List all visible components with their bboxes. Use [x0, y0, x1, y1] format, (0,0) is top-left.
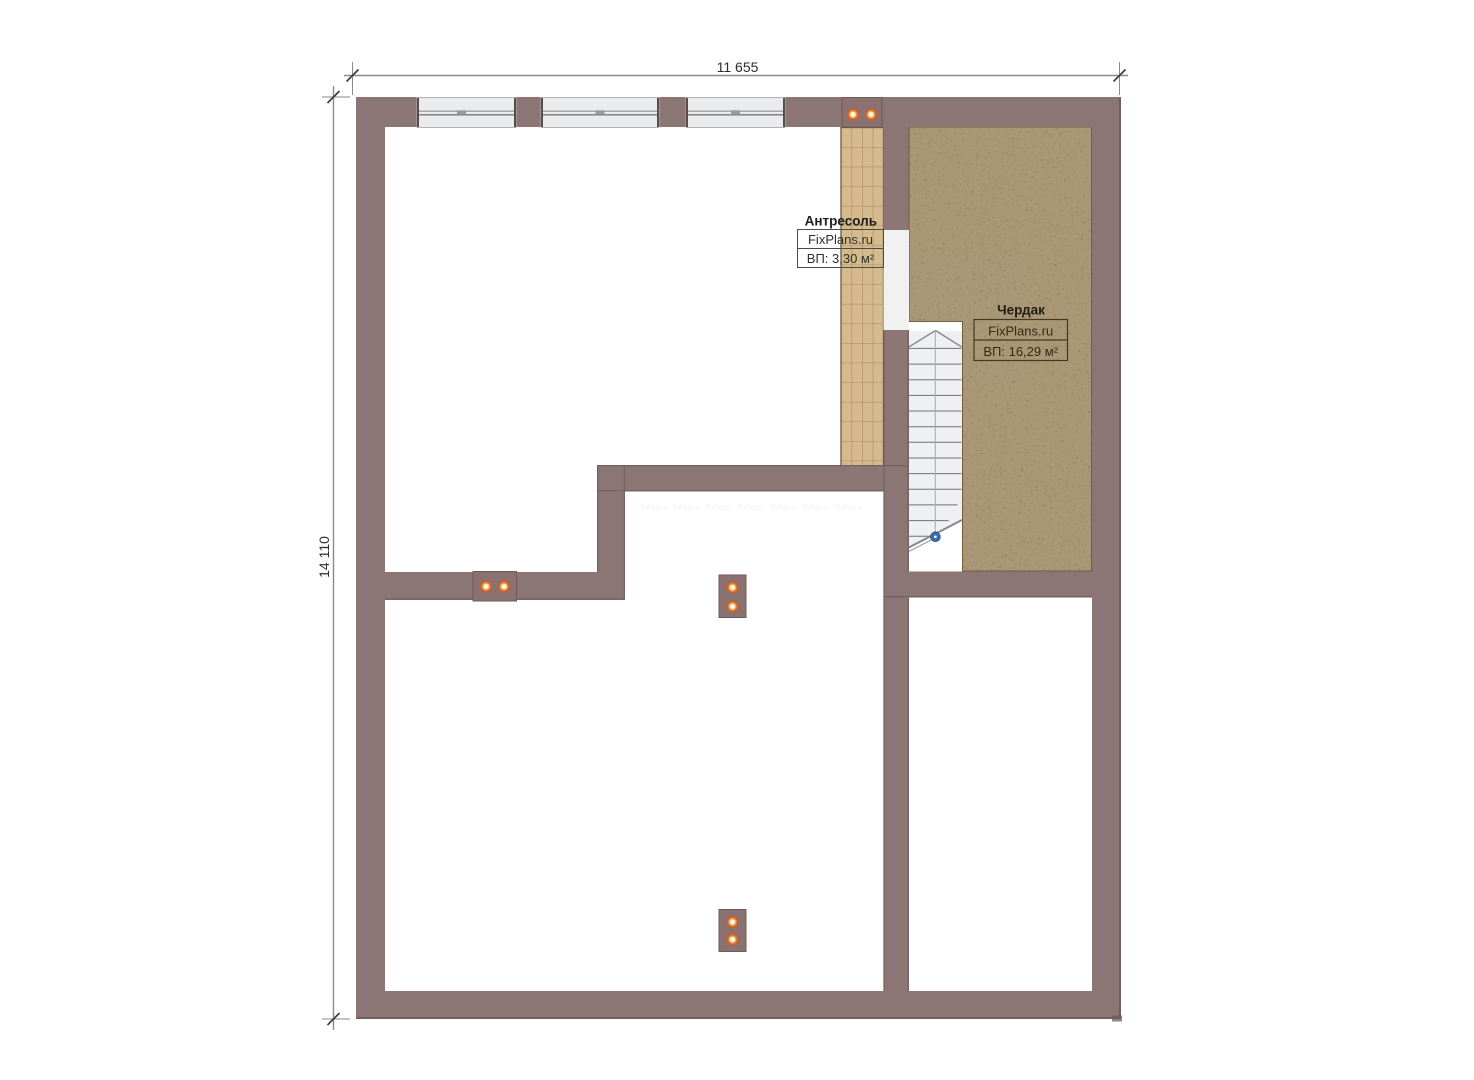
- svg-text:FixPlans.ru: FixPlans.ru: [803, 502, 829, 512]
- svg-text:FixPlans.ru: FixPlans.ru: [641, 502, 667, 512]
- svg-text:ВП: 16,29 м²: ВП: 16,29 м²: [983, 344, 1058, 359]
- svg-text:FixPlans.ru: FixPlans.ru: [988, 324, 1053, 339]
- svg-text:FixPlans.ru: FixPlans.ru: [673, 502, 699, 512]
- svg-text:Антресоль: Антресоль: [805, 214, 877, 229]
- svg-text:11 655: 11 655: [717, 59, 759, 75]
- svg-text:14 110: 14 110: [316, 536, 332, 578]
- svg-text:FixPlans.ru: FixPlans.ru: [836, 502, 862, 512]
- svg-text:FixPlans.ru: FixPlans.ru: [771, 502, 797, 512]
- svg-text:Чердак: Чердак: [997, 303, 1045, 318]
- svg-text:FixPlans.ru: FixPlans.ru: [706, 502, 732, 512]
- svg-text:FixPlans.ru: FixPlans.ru: [808, 232, 873, 247]
- svg-text:ВП: 3,30 м²: ВП: 3,30 м²: [807, 251, 875, 266]
- svg-text:FixPlans.ru: FixPlans.ru: [738, 502, 764, 512]
